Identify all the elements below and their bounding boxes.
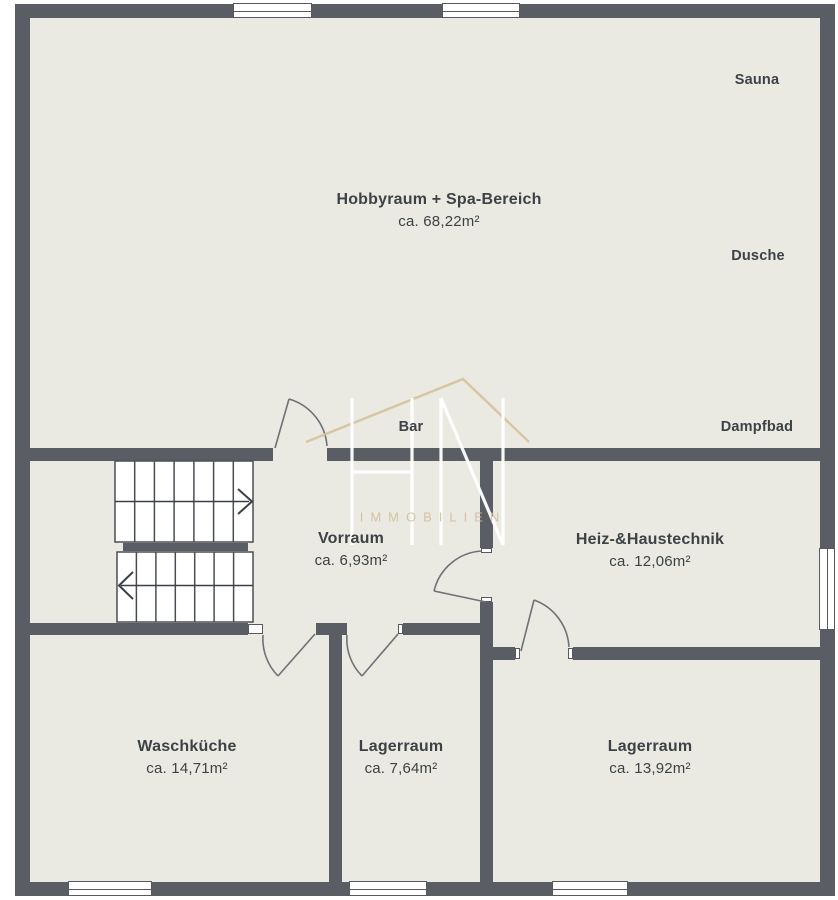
room-name: Lagerraum	[608, 736, 693, 758]
room-label-lagerraum-gross: Lagerraum ca. 13,92m²	[608, 736, 693, 780]
door-jamb	[398, 624, 403, 634]
outer-wall-right	[820, 4, 835, 896]
room-label-lagerraum-klein: Lagerraum ca. 7,64m²	[359, 736, 444, 780]
room-area: ca. 68,22m²	[336, 211, 541, 233]
feature-label-sauna: Sauna	[735, 72, 780, 88]
room-name: Vorraum	[315, 528, 388, 550]
wall-hobbyraum-right	[327, 448, 820, 461]
wall-hobbyraum-left	[30, 448, 273, 461]
room-area: ca. 13,92m²	[608, 758, 693, 780]
floorplan-canvas: IMMOBILIEN Hobbyraum + Spa-Bereich ca. 6…	[0, 0, 838, 900]
room-name: Heiz-&Haustechnik	[576, 529, 724, 551]
room-area: ca. 14,71m²	[137, 758, 236, 780]
door-jamb	[568, 648, 573, 659]
watermark-subtitle: IMMOBILIEN	[360, 510, 507, 525]
window-bottom-lagerraum-gross	[552, 881, 628, 896]
door-jamb	[481, 548, 492, 553]
wall-mid-left	[30, 623, 248, 635]
door-jamb	[515, 648, 520, 659]
wall-heiz-bottom-left	[493, 647, 515, 660]
outer-wall-top	[15, 4, 835, 18]
wall-heiz-bottom-right	[573, 647, 820, 660]
feature-label-bar: Bar	[399, 419, 424, 435]
room-name: Waschküche	[137, 736, 236, 758]
window-bottom-lagerraum-klein	[349, 881, 427, 896]
room-label-hobbyraum: Hobbyraum + Spa-Bereich ca. 68,22m²	[336, 189, 541, 233]
outer-wall-left	[15, 4, 30, 896]
wall-vorraum-heiz-upper	[480, 461, 493, 548]
door-jamb	[481, 597, 492, 602]
wall-mid-right	[403, 623, 480, 635]
feature-label-dampfbad: Dampfbad	[721, 419, 794, 435]
room-label-waschkueche: Waschküche ca. 14,71m²	[137, 736, 236, 780]
room-label-vorraum: Vorraum ca. 6,93m²	[315, 528, 388, 572]
feature-label-dusche: Dusche	[731, 248, 785, 264]
room-name: Lagerraum	[359, 736, 444, 758]
room-name: Hobbyraum + Spa-Bereich	[336, 189, 541, 211]
window-right-heiz	[819, 548, 835, 630]
window-top-left	[233, 3, 312, 18]
door-jamb	[248, 624, 263, 634]
room-area: ca. 12,06m²	[576, 551, 724, 573]
window-top-right	[442, 3, 520, 18]
wall-vorraum-heiz-lower	[480, 602, 493, 882]
room-area: ca. 6,93m²	[315, 550, 388, 572]
room-label-heiz: Heiz-&Haustechnik ca. 12,06m²	[576, 529, 724, 573]
window-bottom-waschkueche	[68, 881, 152, 896]
wall-waschkueche-lagerraum	[329, 623, 342, 882]
room-area: ca. 7,64m²	[359, 758, 444, 780]
